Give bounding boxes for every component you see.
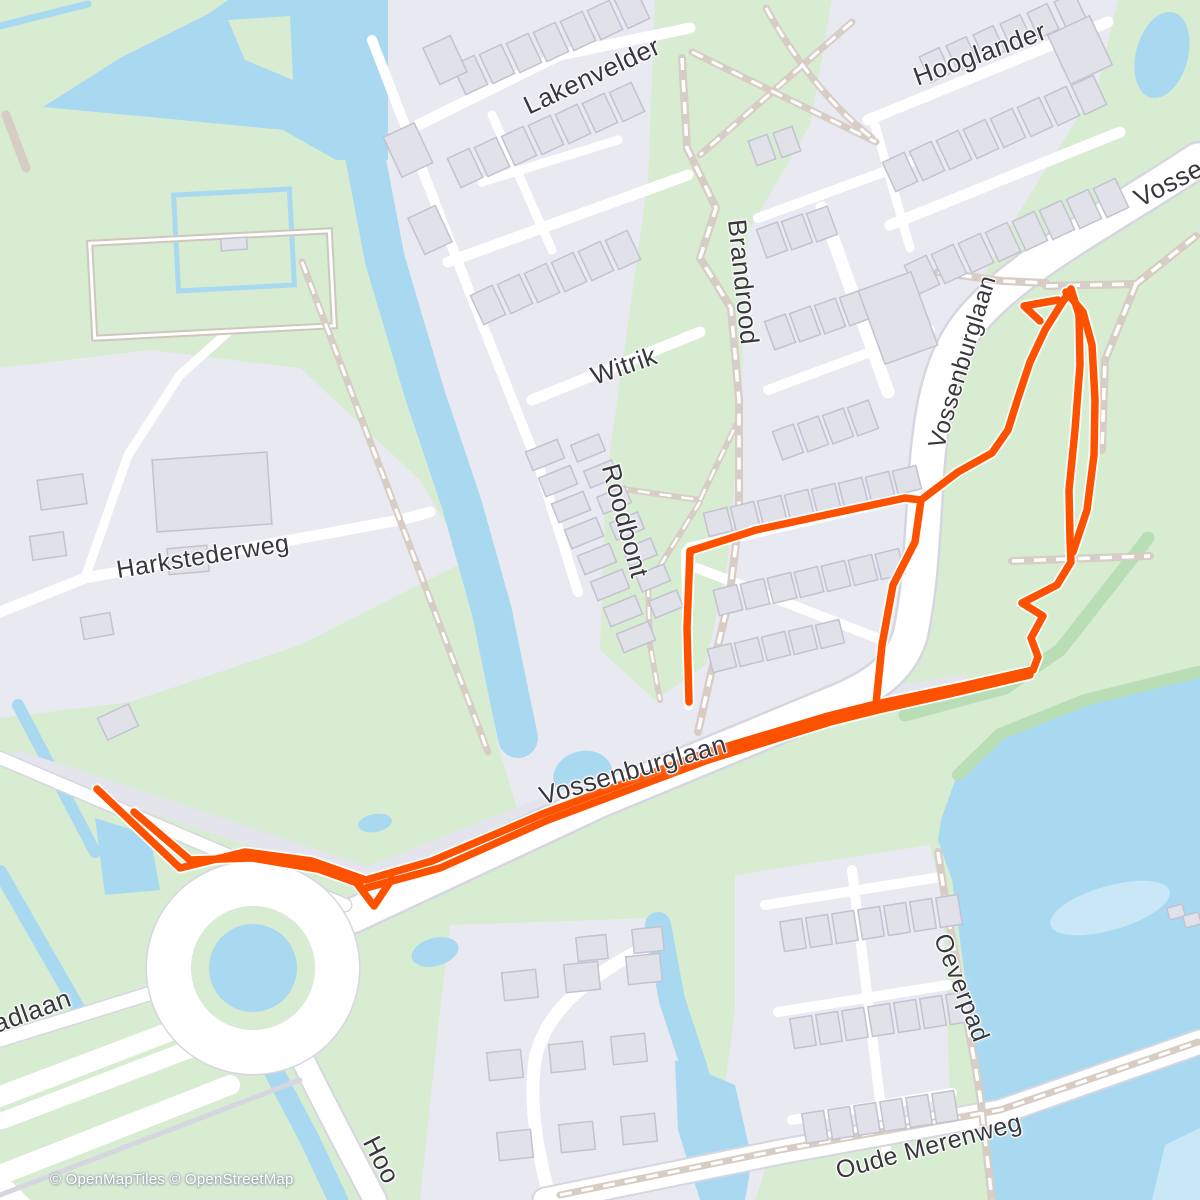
map-canvas[interactable]: [0, 0, 1200, 1200]
roundabout: [147, 862, 359, 1074]
map-viewport[interactable]: Lakenvelder Hooglander Vossenburglaan Br…: [0, 0, 1200, 1200]
map-attribution[interactable]: © OpenMapTiles © OpenStreetMap: [50, 1171, 294, 1188]
